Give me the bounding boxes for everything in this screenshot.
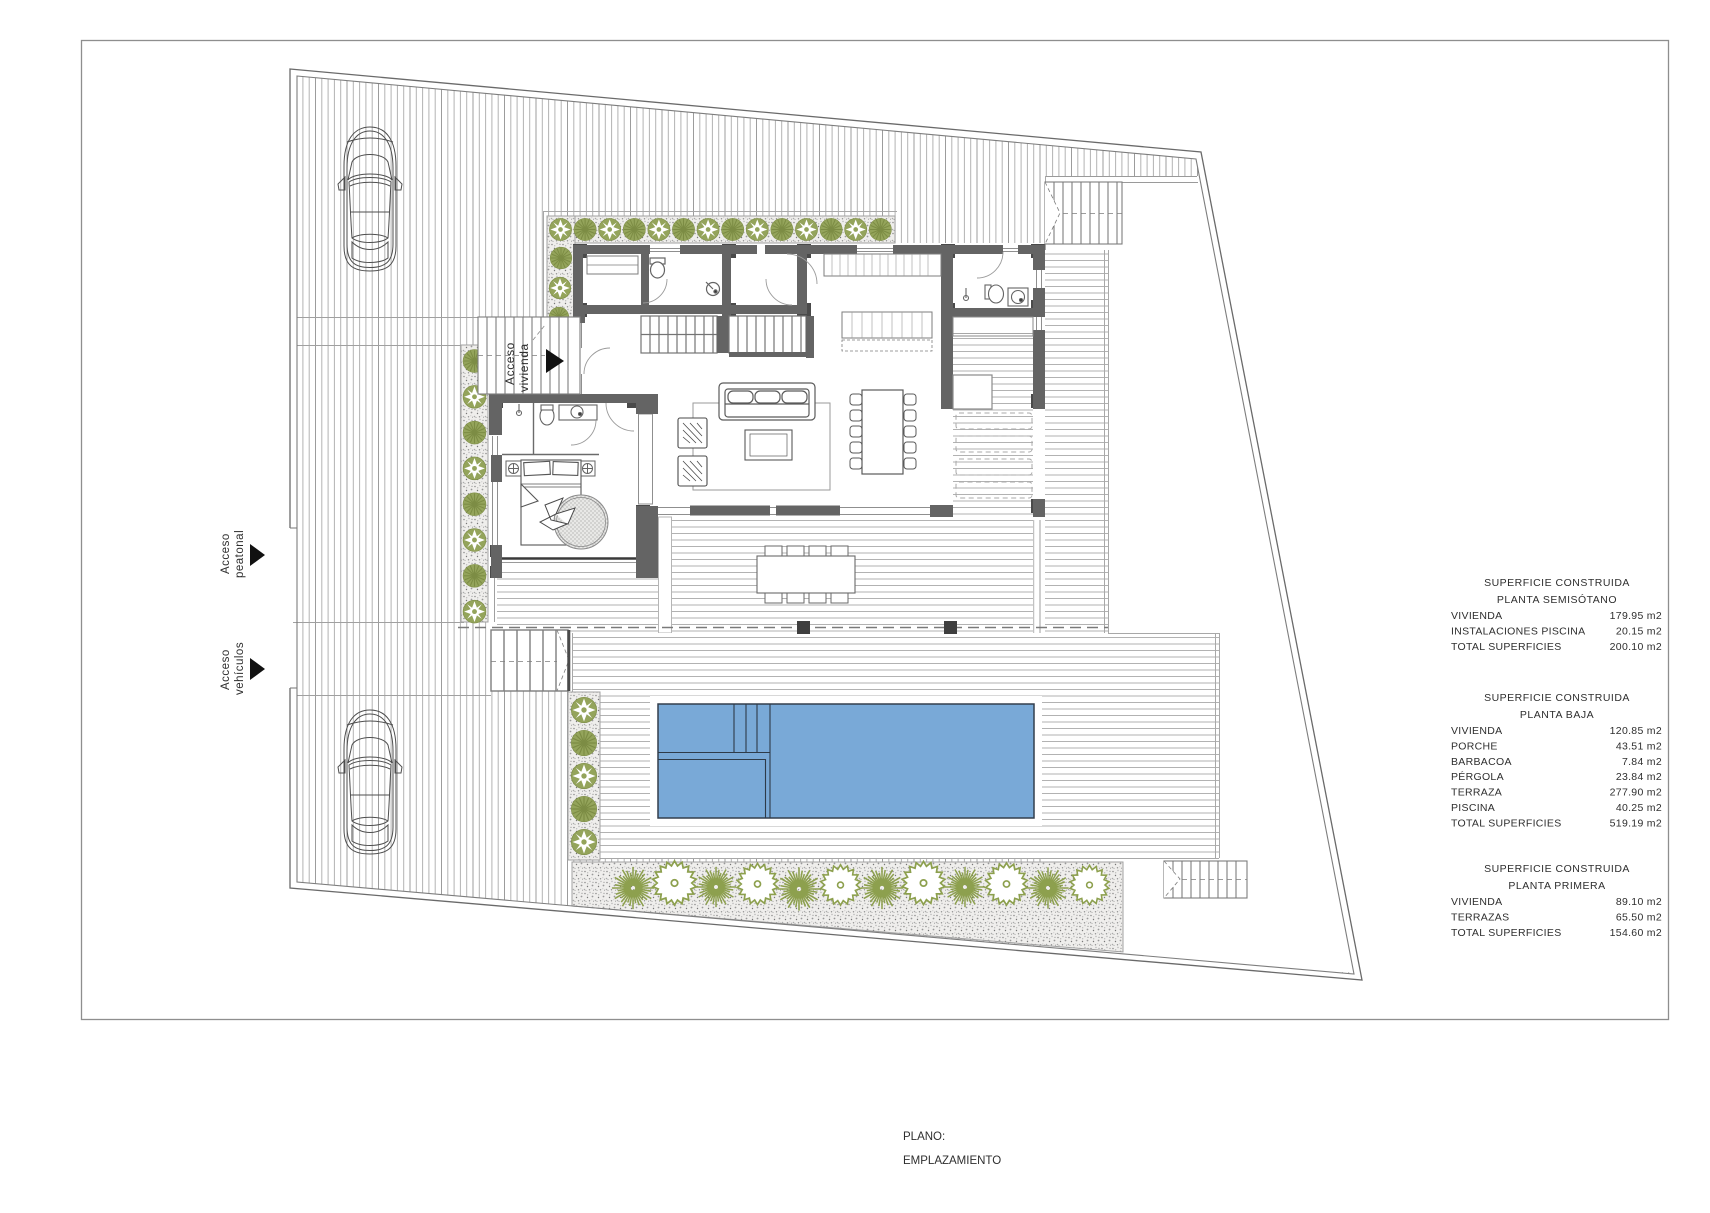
svg-text:Acceso: Acceso xyxy=(220,533,232,574)
svg-text:40.25 m2: 40.25 m2 xyxy=(1616,802,1662,814)
svg-text:PORCHE: PORCHE xyxy=(1451,740,1498,752)
svg-text:TOTAL SUPERFICIES: TOTAL SUPERFICIES xyxy=(1451,927,1562,939)
svg-text:vivienda: vivienda xyxy=(517,343,531,392)
svg-text:277.90 m2: 277.90 m2 xyxy=(1610,787,1662,799)
svg-text:PLANTA PRIMERA: PLANTA PRIMERA xyxy=(1508,880,1605,892)
svg-text:BARBACOA: BARBACOA xyxy=(1451,756,1512,768)
svg-text:179.95 m2: 179.95 m2 xyxy=(1610,610,1662,622)
svg-text:vehículos: vehículos xyxy=(234,642,246,695)
svg-text:TERRAZA: TERRAZA xyxy=(1451,787,1502,799)
svg-text:154.60 m2: 154.60 m2 xyxy=(1610,927,1662,939)
svg-text:23.84 m2: 23.84 m2 xyxy=(1616,771,1662,783)
svg-text:SUPERFICIE CONSTRUIDA: SUPERFICIE CONSTRUIDA xyxy=(1484,863,1630,875)
svg-text:SUPERFICIE CONSTRUIDA: SUPERFICIE CONSTRUIDA xyxy=(1484,577,1630,589)
svg-text:519.19 m2: 519.19 m2 xyxy=(1610,817,1662,829)
svg-text:20.15 m2: 20.15 m2 xyxy=(1616,625,1662,637)
svg-text:SUPERFICIE CONSTRUIDA: SUPERFICIE CONSTRUIDA xyxy=(1484,692,1630,704)
svg-text:7.84 m2: 7.84 m2 xyxy=(1622,756,1662,768)
svg-text:TOTAL SUPERFICIES: TOTAL SUPERFICIES xyxy=(1451,641,1562,653)
svg-text:PLANTA BAJA: PLANTA BAJA xyxy=(1520,709,1594,721)
svg-text:PISCINA: PISCINA xyxy=(1451,802,1495,814)
svg-text:65.50 m2: 65.50 m2 xyxy=(1616,911,1662,923)
svg-text:INSTALACIONES PISCINA: INSTALACIONES PISCINA xyxy=(1451,625,1585,637)
svg-text:VIVIENDA: VIVIENDA xyxy=(1451,725,1502,737)
svg-text:120.85 m2: 120.85 m2 xyxy=(1610,725,1662,737)
svg-text:PÉRGOLA: PÉRGOLA xyxy=(1451,770,1504,783)
svg-text:Acceso: Acceso xyxy=(220,649,232,690)
svg-text:VIVIENDA: VIVIENDA xyxy=(1451,610,1502,622)
svg-text:peatonal: peatonal xyxy=(234,530,246,578)
svg-text:200.10 m2: 200.10 m2 xyxy=(1610,641,1662,653)
svg-text:Acceso: Acceso xyxy=(503,342,517,385)
svg-text:TOTAL SUPERFICIES: TOTAL SUPERFICIES xyxy=(1451,817,1562,829)
svg-text:EMPLAZAMIENTO: EMPLAZAMIENTO xyxy=(903,1155,1001,1167)
svg-text:TERRAZAS: TERRAZAS xyxy=(1451,911,1509,923)
svg-text:VIVIENDA: VIVIENDA xyxy=(1451,896,1502,908)
svg-text:PLANO:: PLANO: xyxy=(903,1131,945,1143)
svg-text:PLANTA SEMISÓTANO: PLANTA SEMISÓTANO xyxy=(1497,593,1617,606)
svg-text:89.10 m2: 89.10 m2 xyxy=(1616,896,1662,908)
svg-text:43.51 m2: 43.51 m2 xyxy=(1616,740,1662,752)
